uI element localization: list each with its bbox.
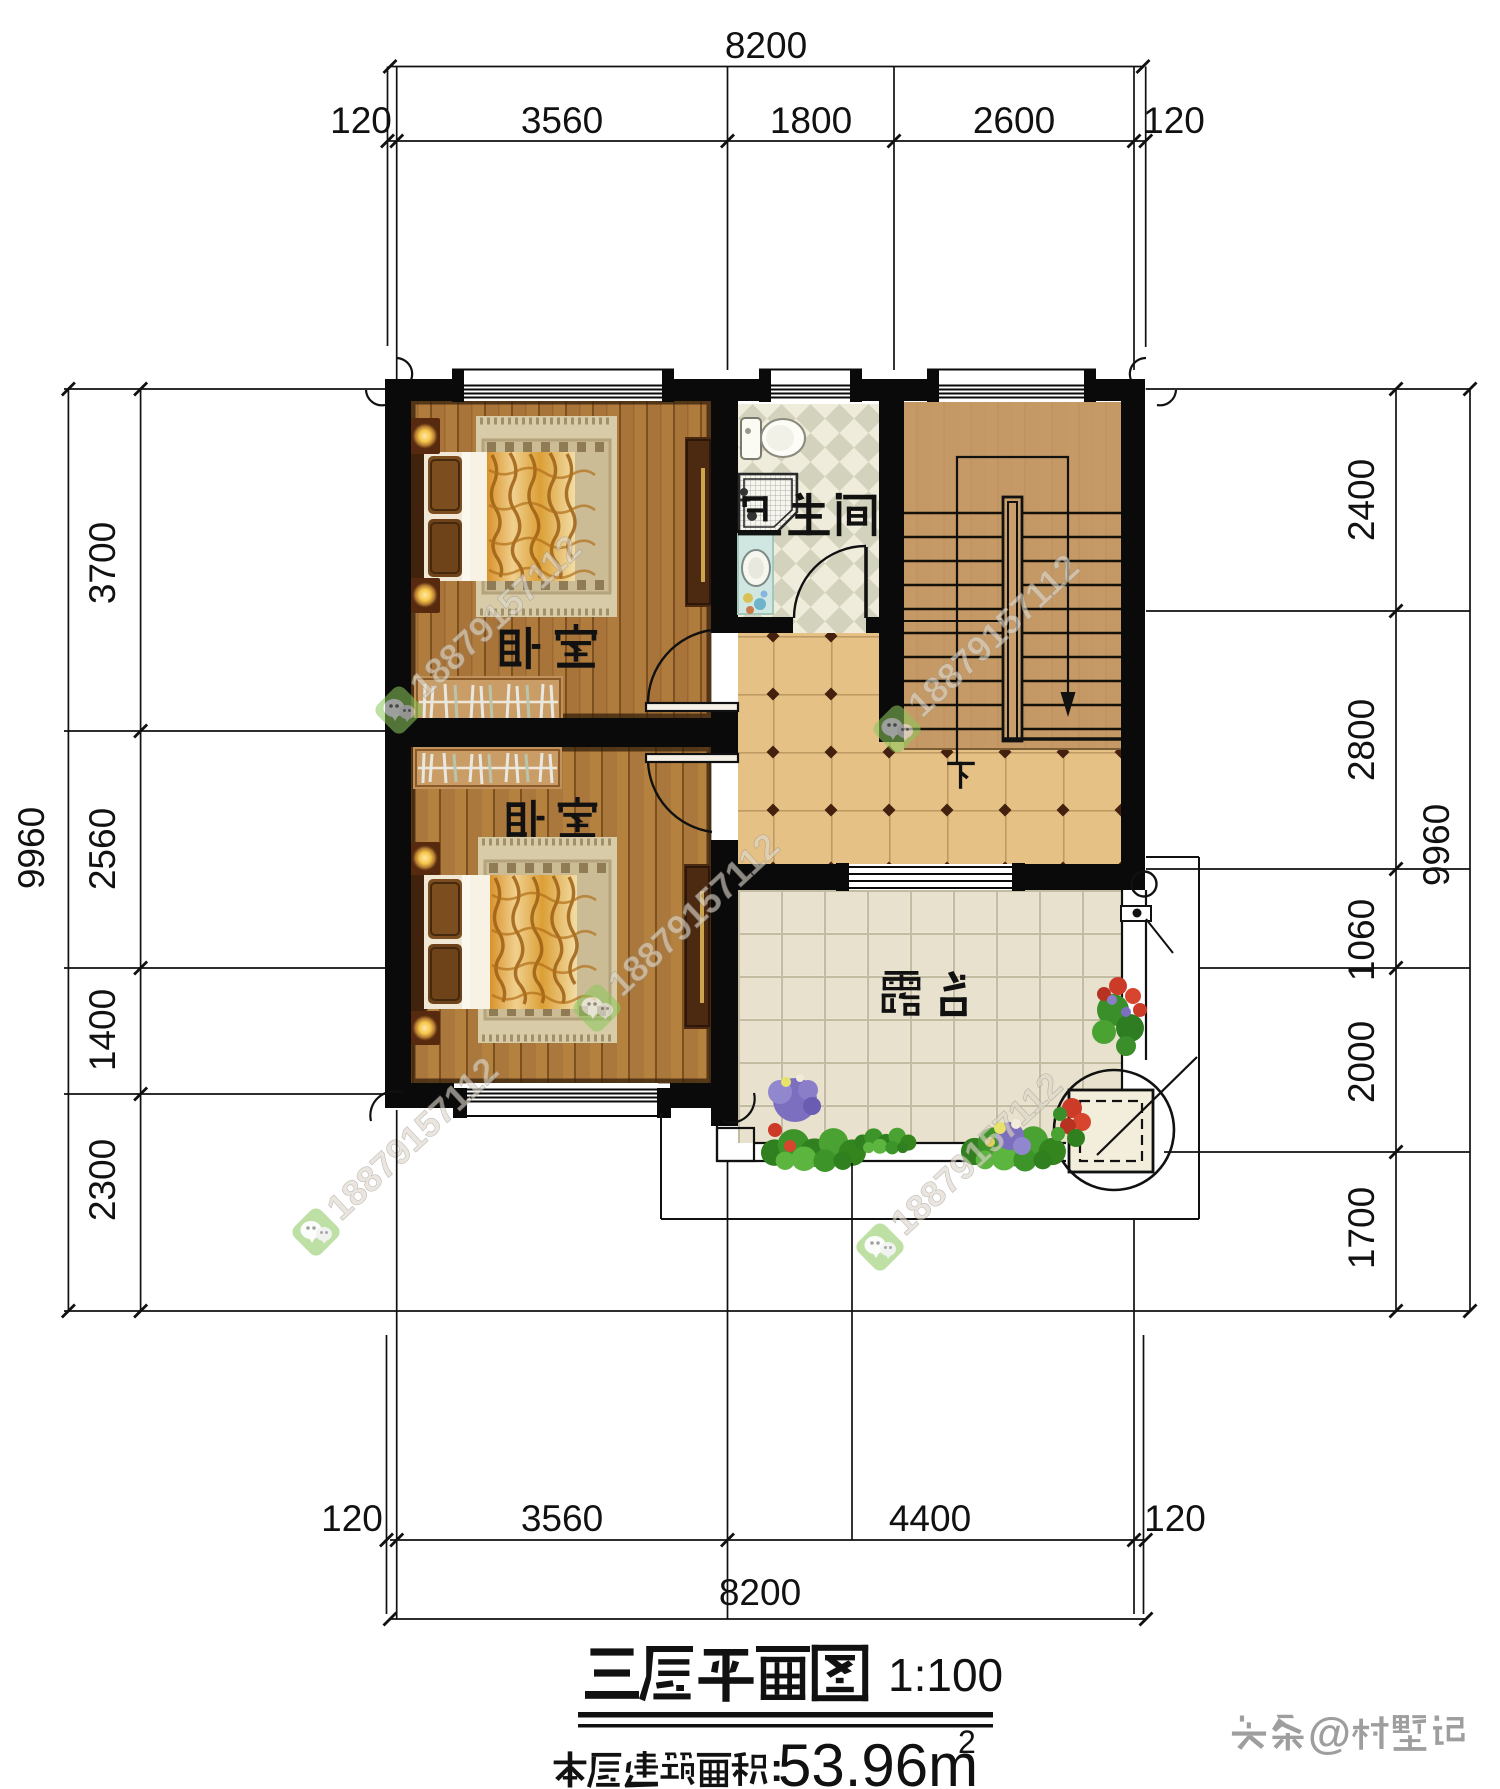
- svg-text:2800: 2800: [1341, 699, 1382, 781]
- svg-text:120: 120: [1143, 100, 1205, 141]
- svg-text:2: 2: [958, 1724, 976, 1760]
- svg-text:3560: 3560: [521, 1498, 603, 1539]
- svg-text:2560: 2560: [82, 808, 123, 890]
- svg-text:3700: 3700: [82, 522, 123, 604]
- svg-text:9960: 9960: [11, 807, 52, 889]
- svg-text:120: 120: [321, 1498, 383, 1539]
- svg-text:2600: 2600: [973, 100, 1055, 141]
- svg-text:1800: 1800: [770, 100, 852, 141]
- svg-text:2000: 2000: [1341, 1021, 1382, 1103]
- svg-text:1:100: 1:100: [888, 1649, 1003, 1701]
- svg-text:120: 120: [330, 100, 392, 141]
- svg-text:@: @: [1308, 1709, 1351, 1758]
- svg-text:2300: 2300: [82, 1139, 123, 1221]
- svg-text:1700: 1700: [1341, 1187, 1382, 1269]
- svg-text:4400: 4400: [889, 1498, 971, 1539]
- svg-text:1400: 1400: [82, 989, 123, 1071]
- svg-text:3560: 3560: [521, 100, 603, 141]
- svg-text:8200: 8200: [725, 25, 807, 66]
- svg-text:8200: 8200: [719, 1572, 801, 1613]
- svg-text:120: 120: [1144, 1498, 1206, 1539]
- svg-text:2400: 2400: [1341, 459, 1382, 541]
- svg-text:53.96m: 53.96m: [778, 1732, 978, 1789]
- svg-text:9960: 9960: [1416, 804, 1457, 886]
- svg-text:1060: 1060: [1341, 899, 1382, 981]
